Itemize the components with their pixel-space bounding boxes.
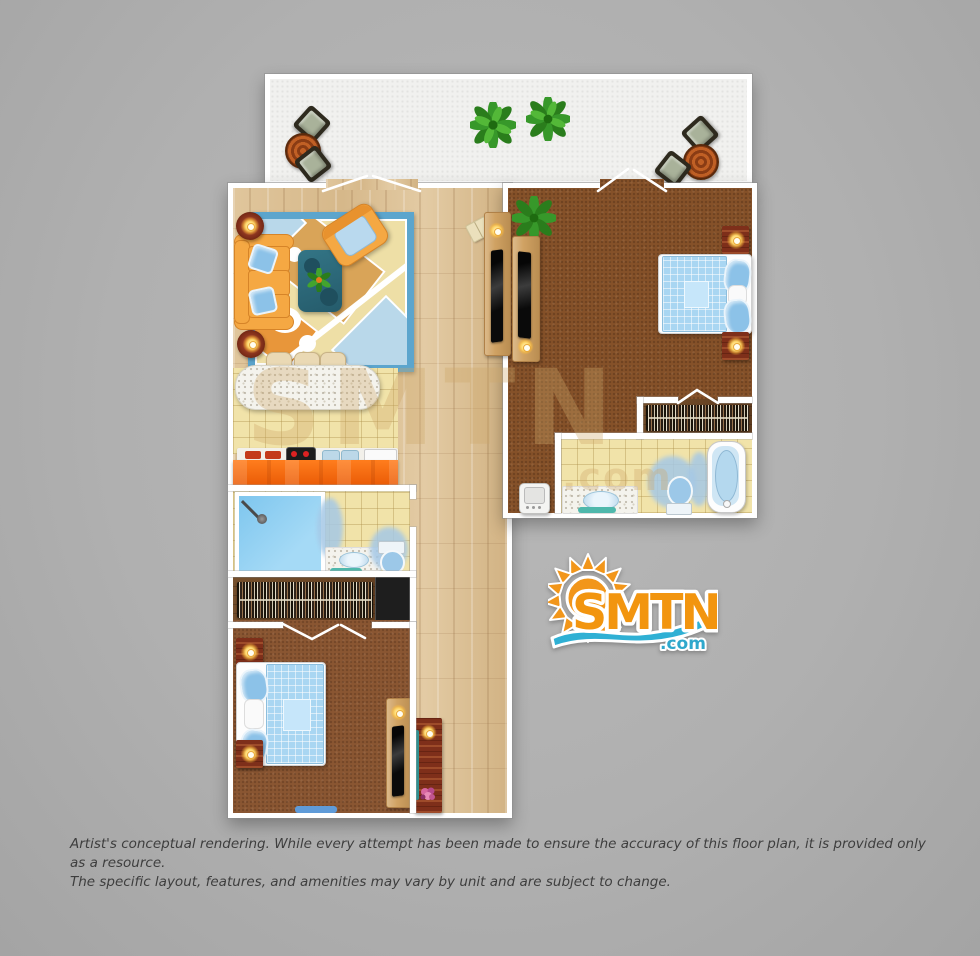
door-swing-marks xyxy=(0,0,980,956)
disclaimer: Artist's conceptual rendering. While eve… xyxy=(70,835,930,892)
smtn-logo: SMTN .com xyxy=(548,552,718,652)
disclaimer-line-1: Artist's conceptual rendering. While eve… xyxy=(70,835,930,873)
logo-tld: .com xyxy=(660,634,706,652)
disclaimer-line-2: The specific layout, features, and ameni… xyxy=(70,873,930,892)
logo-text: SMTN xyxy=(572,584,718,641)
floor-plan-canvas: SMTN .com xyxy=(0,0,980,956)
